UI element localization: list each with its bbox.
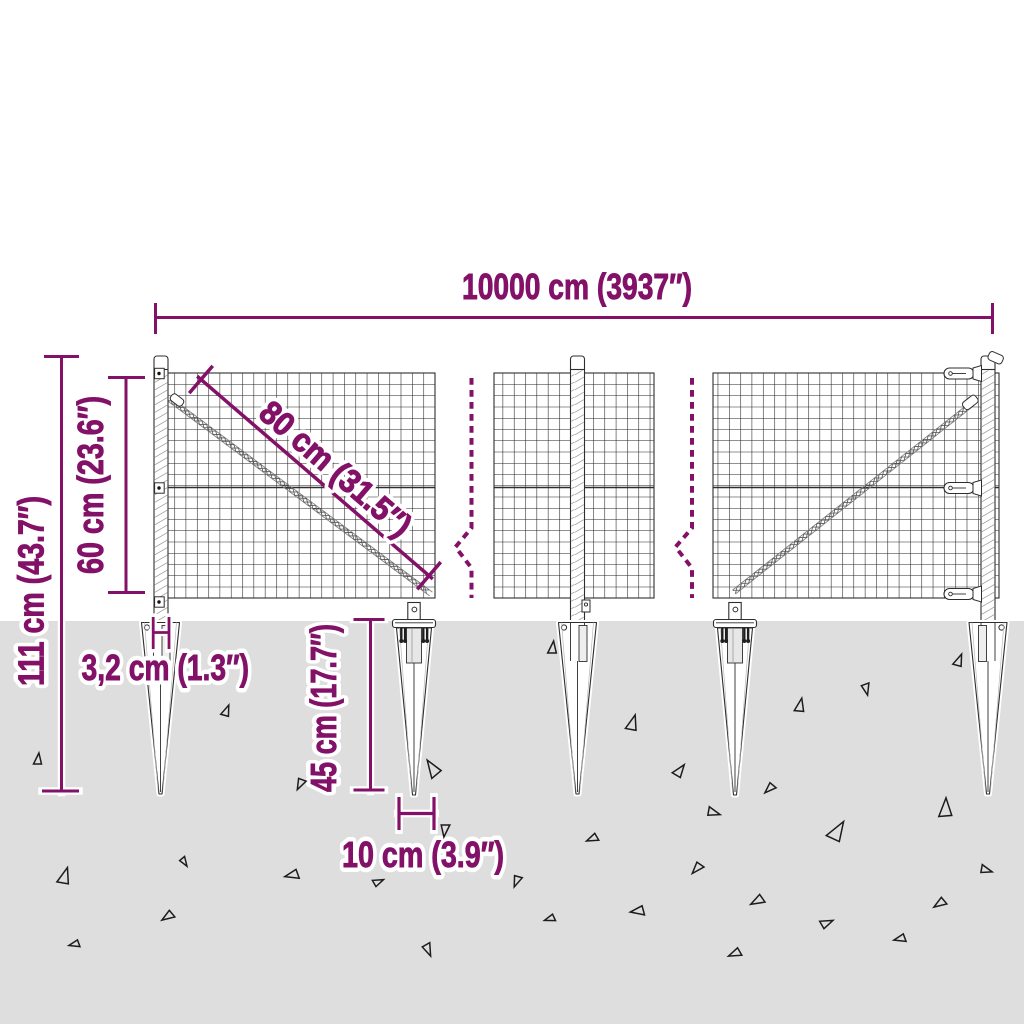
svg-text:45 cm (17.7″): 45 cm (17.7″) [303,624,344,792]
svg-text:111 cm (43.7″): 111 cm (43.7″) [11,496,52,686]
svg-text:10 cm (3.9″): 10 cm (3.9″) [342,834,504,875]
svg-text:3,2 cm (1.3″): 3,2 cm (1.3″) [82,647,250,688]
svg-text:60 cm (23.6″): 60 cm (23.6″) [70,396,111,574]
svg-text:10000 cm (3937″): 10000 cm (3937″) [462,266,692,307]
